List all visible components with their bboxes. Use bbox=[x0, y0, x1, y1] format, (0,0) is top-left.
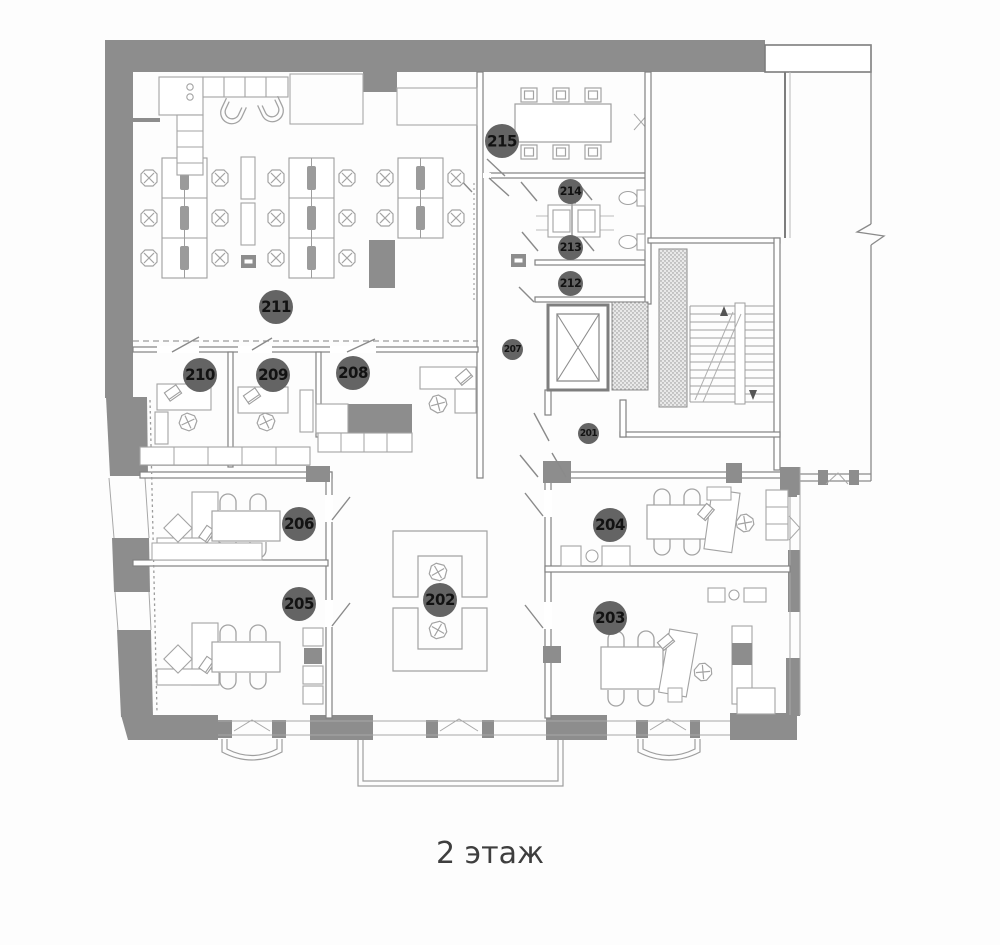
room-badge-208: 208 bbox=[336, 356, 370, 390]
room-badge-206-label: 206 bbox=[284, 515, 314, 534]
toilet-icon bbox=[619, 234, 645, 250]
conference-table bbox=[515, 104, 611, 142]
printer-icon bbox=[241, 255, 256, 268]
cabinet-row-210-209 bbox=[140, 447, 310, 465]
elevator bbox=[548, 305, 608, 390]
room-205-office bbox=[157, 623, 280, 689]
room-badge-202-label: 202 bbox=[425, 591, 455, 610]
room-badge-201: 201 bbox=[578, 423, 599, 444]
armchair bbox=[217, 98, 246, 127]
desk-cluster bbox=[268, 158, 355, 278]
room-badge-214: 214 bbox=[558, 179, 583, 204]
room-badge-204: 204 bbox=[593, 508, 627, 542]
toilet-icon bbox=[619, 190, 645, 206]
room-badge-204-label: 204 bbox=[595, 516, 625, 535]
room-209-office bbox=[238, 387, 313, 432]
boundary-line bbox=[800, 45, 884, 485]
room-badge-210-label: 210 bbox=[185, 366, 215, 385]
room-badge-210: 210 bbox=[183, 358, 217, 392]
room-badge-215-label: 215 bbox=[487, 132, 517, 151]
armchair bbox=[258, 96, 287, 125]
desk-cluster bbox=[377, 158, 464, 238]
room-badge-203-label: 203 bbox=[595, 609, 625, 628]
room-badge-201-label: 201 bbox=[580, 428, 597, 439]
room-badge-207: 207 bbox=[502, 339, 523, 360]
balconies bbox=[222, 739, 700, 786]
room-211-office bbox=[141, 74, 477, 278]
room-badge-211-label: 211 bbox=[261, 298, 291, 317]
room-215-meeting bbox=[515, 88, 611, 159]
cabinet bbox=[241, 157, 255, 199]
room-badge-205: 205 bbox=[282, 587, 316, 621]
room-badge-215: 215 bbox=[485, 124, 519, 158]
room-badge-207-label: 207 bbox=[504, 344, 521, 355]
kitchen-counter bbox=[159, 77, 288, 175]
cabinet bbox=[241, 203, 255, 245]
room-badge-214-label: 214 bbox=[560, 185, 581, 199]
room-badge-209-label: 209 bbox=[258, 366, 288, 385]
floor-title: 2 этаж bbox=[0, 836, 980, 871]
room-badge-211: 211 bbox=[259, 290, 293, 324]
room-badge-213-label: 213 bbox=[560, 241, 581, 255]
room-badge-213: 213 bbox=[558, 235, 583, 260]
room-badge-212-label: 212 bbox=[560, 277, 581, 291]
staircase bbox=[690, 303, 774, 404]
room-203-office bbox=[601, 588, 775, 714]
desk-cluster bbox=[141, 158, 228, 278]
room-210-office bbox=[155, 384, 211, 444]
printer-icon bbox=[511, 254, 526, 267]
top-right-extension bbox=[765, 45, 871, 238]
room-badge-208-label: 208 bbox=[338, 364, 368, 383]
hall-cabinets bbox=[303, 628, 323, 704]
room-206-office bbox=[152, 492, 280, 560]
room-badge-206: 206 bbox=[282, 507, 316, 541]
floor-plan-page: 215 214 213 212 211 210 209 208 207 201 … bbox=[0, 0, 1000, 945]
room-badge-203: 203 bbox=[593, 601, 627, 635]
room-badge-202: 202 bbox=[423, 583, 457, 617]
room-badge-205-label: 205 bbox=[284, 595, 314, 614]
room-badge-209: 209 bbox=[256, 358, 290, 392]
room-badge-212: 212 bbox=[558, 271, 583, 296]
